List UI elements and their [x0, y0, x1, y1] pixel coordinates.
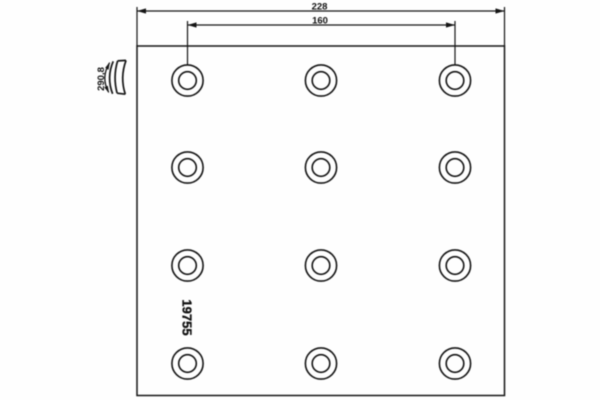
svg-text:290,8: 290,8 — [96, 67, 107, 91]
svg-text:19755: 19755 — [180, 299, 195, 335]
svg-text:160: 160 — [312, 16, 328, 27]
svg-text:228: 228 — [312, 2, 328, 13]
